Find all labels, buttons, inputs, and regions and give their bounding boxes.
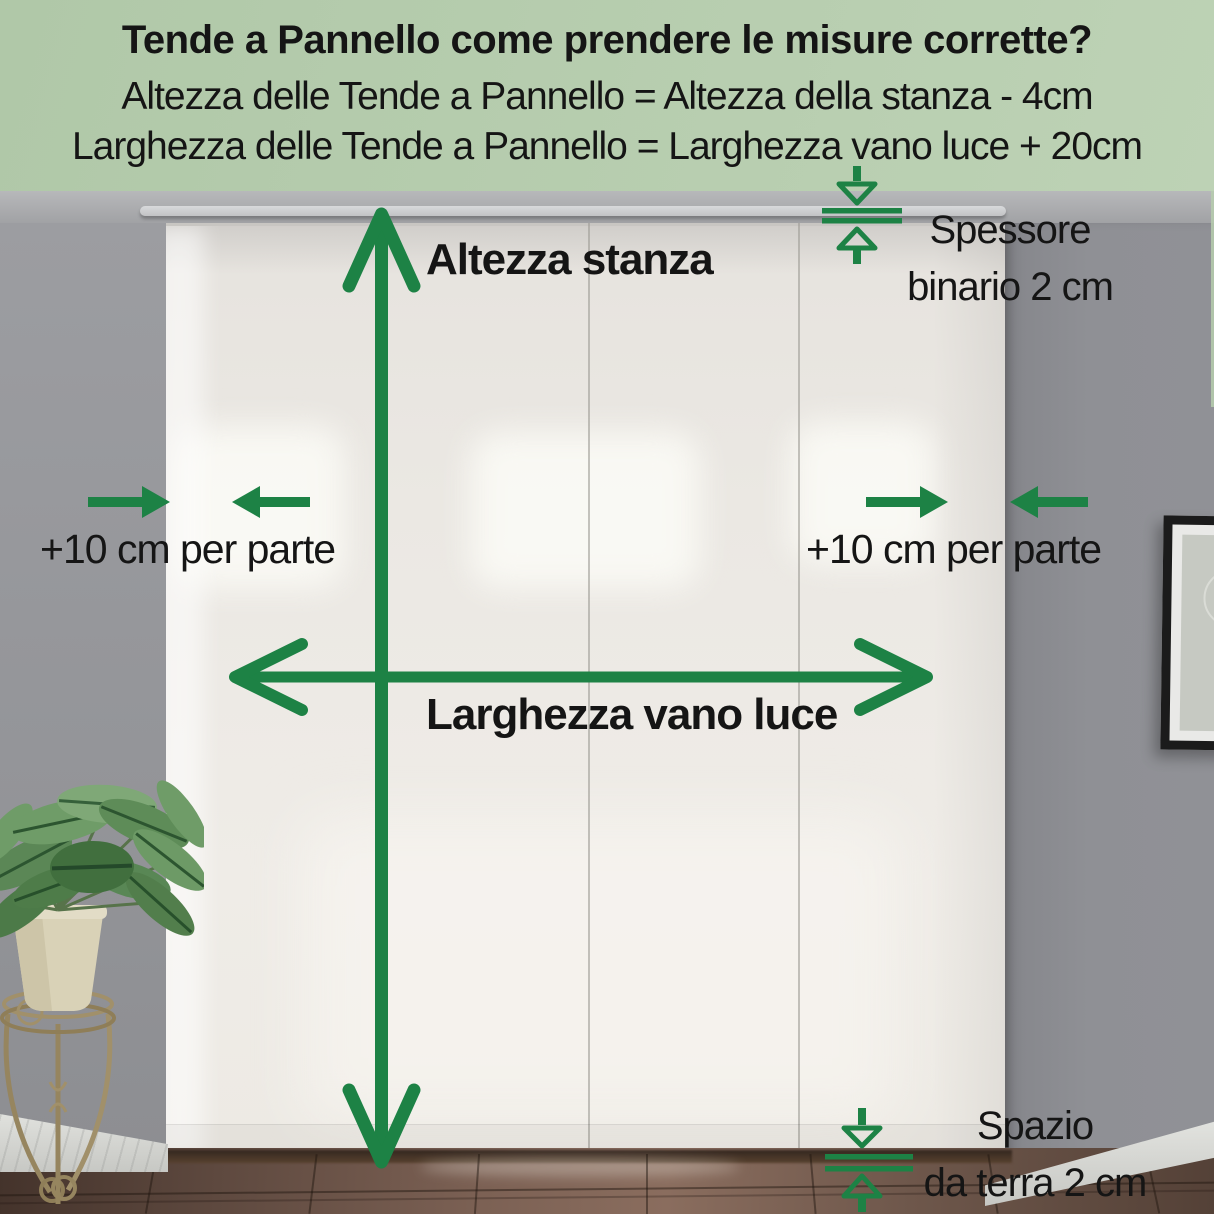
track-thickness-label: Spessore binario 2 cm — [895, 202, 1125, 316]
side-margin-arrows-right-icon — [866, 486, 1090, 518]
floor-gap-label: Spazio da terra 2 cm — [915, 1098, 1155, 1212]
room-height-label: Altezza stanza — [426, 235, 713, 285]
side-margin-right-label: +10 cm per parte — [806, 526, 1101, 573]
opening-width-label: Larghezza vano luce — [426, 690, 837, 740]
track-thickness-line2: binario 2 cm — [895, 259, 1125, 316]
floor-reflection — [420, 1158, 740, 1176]
potted-plant — [0, 752, 204, 1214]
plant-stand — [2, 991, 114, 1204]
track-thickness-line1: Spessore — [895, 202, 1125, 259]
floor-gap-arrows-icon — [820, 1108, 920, 1214]
picture-frame — [1160, 515, 1214, 750]
formula-width: Larghezza delle Tende a Pannello = Largh… — [0, 122, 1214, 172]
page-title: Tende a Pannello come prendere le misure… — [0, 14, 1214, 66]
floor-grout-line — [646, 1154, 648, 1214]
floor-gap-line1: Spazio — [915, 1098, 1155, 1155]
wall-art-circle — [1203, 569, 1214, 628]
side-margin-left-label: +10 cm per parte — [40, 526, 335, 573]
light-patch — [470, 432, 700, 588]
header-panel: Tende a Pannello come prendere le misure… — [0, 0, 1214, 191]
side-margin-arrows-left-icon — [88, 486, 312, 518]
infographic-root: Tende a Pannello come prendere le misure… — [0, 0, 1214, 1214]
wall-art — [1180, 535, 1214, 732]
floor-gap-line2: da terra 2 cm — [915, 1155, 1155, 1212]
formula-height: Altezza delle Tende a Pannello = Altezza… — [0, 72, 1214, 122]
